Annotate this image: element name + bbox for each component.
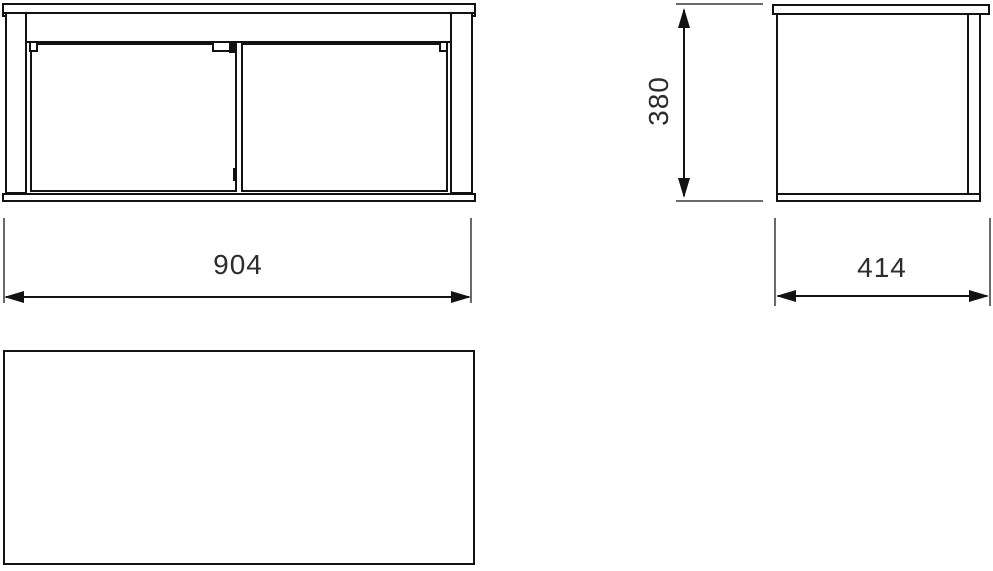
height-dimension-label: 380 <box>645 76 673 126</box>
side-back-leg <box>967 15 981 193</box>
depth-extension-line-right <box>989 218 991 306</box>
arrow-head-up-icon <box>678 8 690 28</box>
front-slide-notch-fill <box>229 43 237 53</box>
front-view <box>0 0 480 210</box>
dimension-height: 380 <box>620 0 780 215</box>
front-plinth <box>2 193 476 202</box>
front-right-drawer <box>241 43 448 192</box>
front-left-leg <box>5 12 27 194</box>
arrow-head-right-icon <box>969 290 989 302</box>
front-right-leg <box>450 12 473 194</box>
top-view <box>3 350 475 565</box>
front-divider-mark <box>233 168 236 181</box>
width-dimension-arrow <box>4 290 471 304</box>
depth-dimension-label: 414 <box>857 254 907 282</box>
width-dimension-label: 904 <box>213 251 263 279</box>
front-left-clip <box>29 43 38 52</box>
arrow-head-right-icon <box>451 291 471 303</box>
front-right-clip <box>439 43 448 52</box>
dimension-width: 904 <box>0 210 480 310</box>
front-left-drawer <box>30 43 237 192</box>
height-arrow-line <box>683 10 685 196</box>
arrow-head-left-icon <box>776 290 796 302</box>
arrow-head-left-icon <box>4 291 24 303</box>
technical-drawing-canvas: 904 380 414 <box>0 0 993 571</box>
width-arrow-line <box>6 296 469 298</box>
side-top-panel <box>772 4 990 15</box>
depth-dimension-arrow <box>776 289 989 303</box>
dimension-depth: 414 <box>650 210 993 310</box>
depth-arrow-line <box>778 295 987 297</box>
arrow-head-down-icon <box>678 178 690 198</box>
side-bottom-rail <box>776 193 981 202</box>
height-extension-line-bottom <box>676 200 763 202</box>
height-dimension-arrow <box>677 8 691 198</box>
front-top-panel <box>2 3 476 14</box>
height-extension-line-top <box>676 3 763 5</box>
